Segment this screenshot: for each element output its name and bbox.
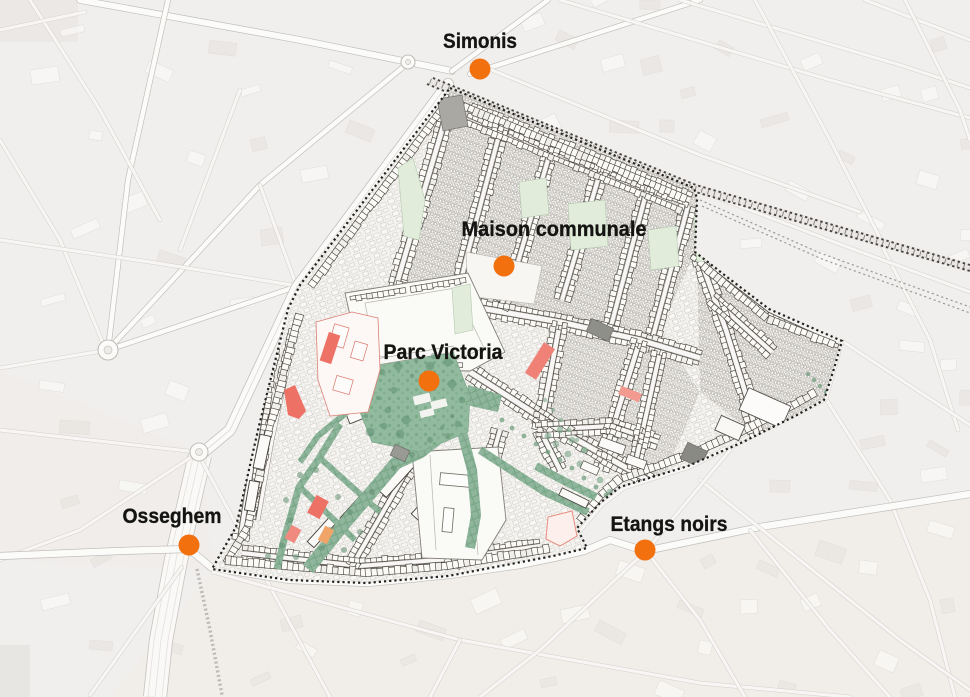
svg-text:Simonis: Simonis	[443, 30, 517, 53]
svg-text:Etangs noirs: Etangs noirs	[611, 513, 728, 536]
svg-text:Parc Victoria: Parc Victoria	[384, 341, 503, 364]
svg-text:Maison communale: Maison communale	[462, 218, 647, 241]
svg-text:Osseghem: Osseghem	[123, 505, 222, 528]
